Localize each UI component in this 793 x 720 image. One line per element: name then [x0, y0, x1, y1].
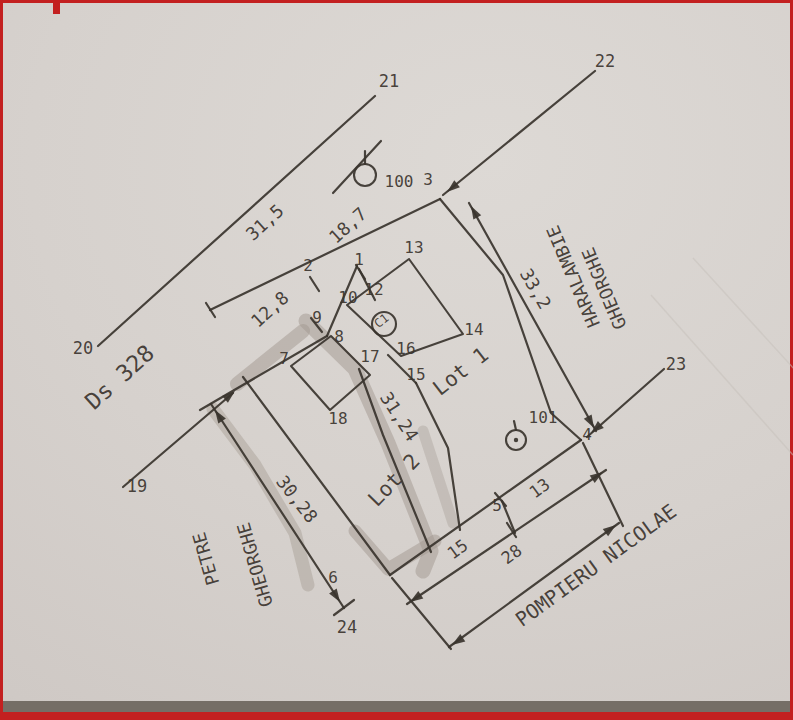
point-label-22: 22 — [595, 51, 615, 71]
eraser-smudge-0 — [237, 331, 303, 384]
tick-frontage-west — [206, 303, 215, 317]
point-label-6: 6 — [328, 568, 338, 587]
paper-crease-1 — [693, 258, 793, 371]
point-label-16: 16 — [396, 339, 415, 358]
point-label-9: 9 — [312, 308, 322, 327]
station-100-label: 100 — [385, 172, 414, 191]
point-label-13: 13 — [404, 238, 423, 257]
dimension-18-7: 18,7 — [325, 203, 371, 248]
dimension-33-2: 33,2 — [516, 265, 556, 313]
scanned-survey-plan: 2122201923241003101456789101221131416171… — [0, 0, 793, 720]
cadastral-plan-drawing: 2122201923241003101456789101221131416171… — [3, 3, 793, 720]
dimension-12-8: 12,8 — [247, 287, 293, 332]
point-label-20: 20 — [73, 338, 93, 358]
dimension-28: 28 — [497, 540, 525, 568]
tick-point-24 — [334, 600, 354, 615]
point-label-3: 3 — [423, 170, 433, 189]
point-label-4: 4 — [582, 425, 592, 444]
point-label-24: 24 — [337, 617, 357, 637]
tick-point-2 — [310, 277, 319, 291]
station-101-symbol-dot — [514, 438, 518, 442]
point-label-5: 5 — [492, 496, 502, 515]
point-label-8: 8 — [334, 327, 344, 346]
point-label-18: 18 — [328, 409, 347, 428]
point-label-1: 1 — [354, 250, 364, 269]
tick-station-101 — [514, 421, 516, 430]
dimension-15: 15 — [443, 535, 471, 563]
extension-line-5 — [502, 501, 515, 533]
paper-crease-0 — [651, 295, 793, 455]
arrow-dim-15-left — [410, 591, 423, 602]
point-label-12: 12 — [364, 280, 383, 299]
line-22 — [443, 71, 595, 195]
point-label-14: 14 — [464, 320, 483, 339]
dimension-line-28 — [449, 523, 619, 647]
point-label-7: 7 — [279, 349, 289, 368]
arrow-dim-33-2-top — [471, 206, 481, 220]
point-label-19: 19 — [127, 476, 147, 496]
eraser-smudge-3 — [423, 431, 453, 523]
dimension-line-30-28 — [211, 404, 344, 608]
station-100-symbol — [354, 164, 376, 186]
scan-edge-band — [3, 701, 790, 717]
point-label-15: 15 — [406, 365, 425, 384]
arrow-dim-30-28-bottom — [329, 589, 340, 602]
point-label-21: 21 — [379, 71, 399, 91]
frontage-line-west — [200, 336, 327, 410]
scan-artifact-red-tick — [53, 3, 60, 14]
point-label-17: 17 — [360, 347, 379, 366]
extension-line-6 — [392, 578, 451, 649]
neighbor-name-petre-gheorghe: GHEORGHE — [233, 520, 277, 609]
road-line-20-21 — [98, 96, 375, 346]
lot1-label: Lot 1 — [428, 343, 493, 401]
dimension-line-33-2 — [469, 203, 596, 431]
point-label-10: 10 — [338, 288, 357, 307]
dimension-13: 13 — [525, 474, 553, 502]
line-19 — [123, 393, 233, 487]
station-101-label: 101 — [529, 408, 558, 427]
point-label-23: 23 — [666, 354, 686, 374]
street-name-pompieru-nicolae: POMPIERU NICOLAE — [511, 499, 681, 632]
point-label-2: 2 — [303, 256, 313, 275]
extension-line-4 — [583, 443, 623, 526]
dimension-31-5: 31,5 — [242, 200, 288, 245]
neighbor-name-petre: PETRE — [188, 530, 223, 588]
